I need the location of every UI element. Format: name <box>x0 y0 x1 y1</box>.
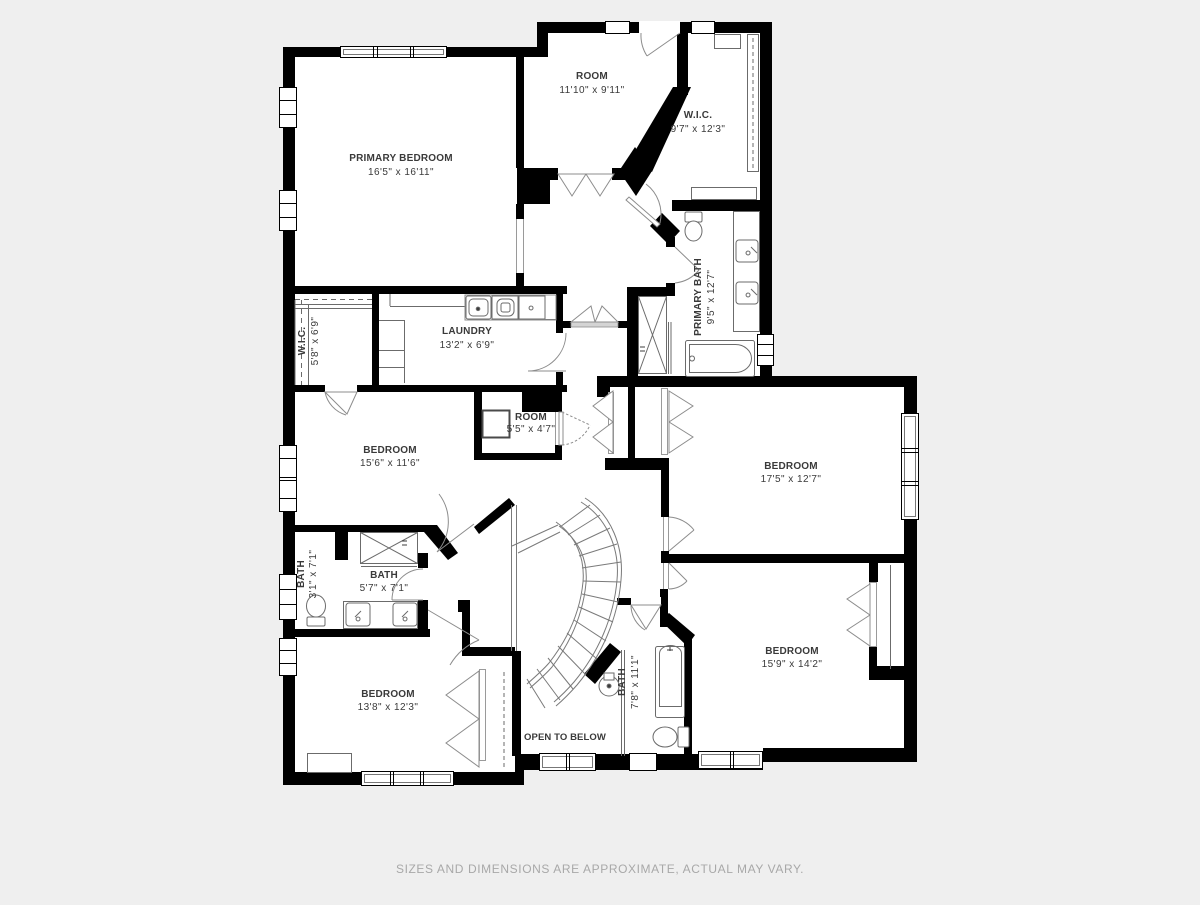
svg-text:BATH: BATH <box>370 570 398 581</box>
svg-text:5'5" x 4'7": 5'5" x 4'7" <box>507 424 556 435</box>
svg-text:W.I.C.: W.I.C. <box>297 327 308 355</box>
svg-text:SIZES AND DIMENSIONS ARE APPRO: SIZES AND DIMENSIONS ARE APPROXIMATE, AC… <box>396 862 804 876</box>
svg-text:15'9" x 14'2": 15'9" x 14'2" <box>762 659 823 670</box>
svg-text:OPEN TO BELOW: OPEN TO BELOW <box>524 732 606 743</box>
svg-text:BEDROOM: BEDROOM <box>764 461 818 472</box>
svg-text:5'8" x 6'9": 5'8" x 6'9" <box>310 317 321 366</box>
svg-text:LAUNDRY: LAUNDRY <box>442 326 492 337</box>
svg-text:W.I.C.: W.I.C. <box>684 110 712 121</box>
svg-text:PRIMARY BATH: PRIMARY BATH <box>693 258 704 336</box>
svg-text:BEDROOM: BEDROOM <box>363 445 417 456</box>
svg-text:13'2" x 6'9": 13'2" x 6'9" <box>440 340 495 351</box>
svg-text:17'5" x 12'7": 17'5" x 12'7" <box>761 474 822 485</box>
svg-text:PRIMARY BEDROOM: PRIMARY BEDROOM <box>349 153 453 164</box>
svg-text:13'8" x 12'3": 13'8" x 12'3" <box>358 702 419 713</box>
svg-text:ROOM: ROOM <box>515 412 547 423</box>
svg-text:11'10" x 9'11": 11'10" x 9'11" <box>559 85 624 96</box>
svg-text:7'8" x 11'1": 7'8" x 11'1" <box>630 655 641 709</box>
svg-text:ROOM: ROOM <box>576 71 608 82</box>
svg-text:BEDROOM: BEDROOM <box>765 646 819 657</box>
svg-text:15'6" x 11'6": 15'6" x 11'6" <box>360 458 420 469</box>
svg-text:BATH: BATH <box>617 668 628 696</box>
svg-text:9'5" x 12'7": 9'5" x 12'7" <box>706 270 717 325</box>
svg-text:3'1" x 7'1": 3'1" x 7'1" <box>308 550 319 599</box>
svg-text:9'7" x 12'3": 9'7" x 12'3" <box>671 124 726 135</box>
svg-text:5'7" x 7'1": 5'7" x 7'1" <box>360 583 409 594</box>
svg-text:BATH: BATH <box>296 560 307 588</box>
svg-text:BEDROOM: BEDROOM <box>361 689 415 700</box>
svg-text:16'5" x 16'11": 16'5" x 16'11" <box>368 167 434 178</box>
